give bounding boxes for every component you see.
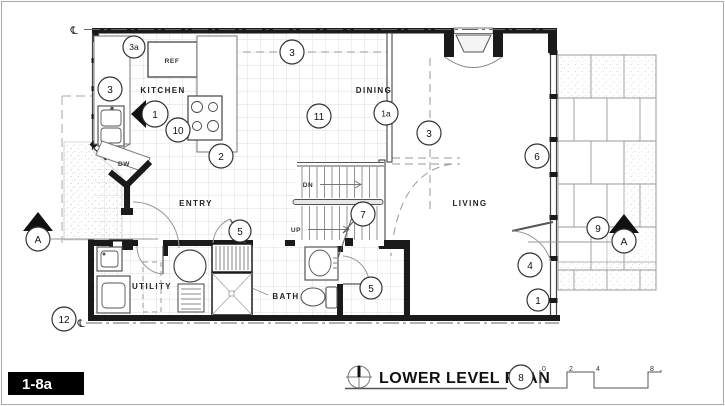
svg-text:9: 9 [595,224,601,235]
svg-text:12: 12 [58,315,70,326]
svg-text:3: 3 [426,129,432,140]
callout-5-bath: 5 [360,277,382,299]
toilet [301,287,337,308]
stair-up-label: UP [291,227,301,234]
svg-text:1a: 1a [381,109,391,119]
furnace [178,284,204,312]
callout-12: 12 [52,307,76,331]
centerline-symbol-bottom: ℄ [76,317,84,330]
svg-text:3a: 3a [129,42,139,52]
sheet-label-text: 1-8a [22,376,53,393]
scale-mark-4: 4 [596,366,600,373]
dw-label: DW [118,161,130,168]
patio-pavers [558,55,656,290]
svg-text:11: 11 [314,112,325,123]
scale-mark-8: 8 [650,366,654,373]
refrigerator: REF [148,42,197,77]
svg-text:1: 1 [535,296,541,307]
living-label: LIVING [452,199,487,208]
callout-8: 8 [509,365,533,389]
callout-3-left: 3 [98,77,122,101]
dining-label: DINING [356,86,392,95]
range-cooktop [188,96,222,140]
sheet-label: 1-8a [8,372,84,395]
callout-3-living: 3 [417,121,441,145]
dining-room: DINING [356,86,392,95]
elevation-marker-1-label: 1 [152,110,158,121]
scale-mark-0: 0 [542,366,546,373]
washer [97,276,130,313]
bath-label: BATH [272,292,299,301]
kitchen-label: KITCHEN [140,86,185,95]
svg-text:7: 7 [360,210,366,221]
svg-text:5: 5 [368,284,374,295]
bath-sink [305,247,338,280]
laundry-sink [97,247,122,271]
callout-9: 9 [587,217,609,239]
water-heater [174,250,206,282]
ref-label: REF [165,58,180,65]
scale-mark-2: 2 [569,366,573,373]
callout-4: 4 [518,253,542,277]
newel-post [345,238,353,246]
floor-plan-canvas: REF DW KITCHEN DINING ENTRY [0,0,725,406]
utility-label: UTILITY [132,282,172,291]
callout-1a: 1a [374,101,398,125]
stair-dn-label: DN [303,182,314,189]
centerline-symbol-top: ℄ [69,24,77,37]
callout-6: 6 [525,144,549,168]
svg-text:4: 4 [527,261,533,272]
svg-text:2: 2 [218,152,224,163]
svg-text:5: 5 [237,227,243,238]
callout-5-entry: 5 [229,220,251,242]
callout-10: 10 [166,118,190,142]
callout-11: 11 [307,104,331,128]
section-marker-a-right-label: A [621,237,628,248]
shower [212,273,252,315]
drawing-sheet: REF DW KITCHEN DINING ENTRY [0,0,725,406]
wall-foot [121,208,133,215]
callout-1-bottom-right: 1 [527,289,549,311]
callout-3-top: 3 [280,40,304,64]
entry-label: ENTRY [179,199,213,208]
svg-text:8: 8 [518,373,524,384]
callout-2: 2 [209,144,233,168]
kitchen-sink [98,106,124,146]
svg-text:3: 3 [107,85,113,96]
svg-text:3: 3 [289,48,295,59]
svg-text:6: 6 [534,152,540,163]
callout-3a: 3a [123,36,145,58]
svg-text:10: 10 [172,126,184,137]
section-marker-a-left-label: A [35,235,42,246]
linen-closet [212,244,252,272]
